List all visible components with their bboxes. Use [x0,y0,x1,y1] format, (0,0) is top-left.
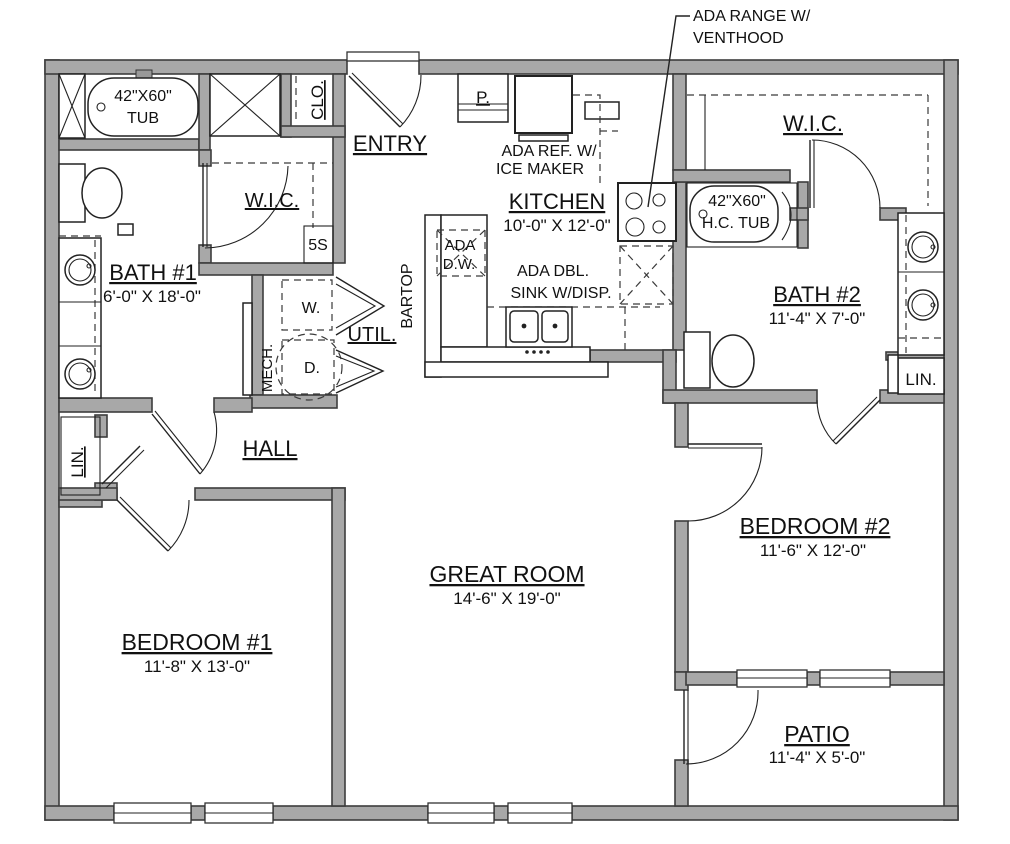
range-icon [618,183,676,241]
entry-door-icon [349,73,421,127]
room-label-wic-right: W.I.C. [783,111,843,136]
linen-left-door-icon [102,446,144,488]
room-label-lin-left: LIN. [68,446,87,477]
room-label-bath1: BATH #1 [109,260,197,285]
shower-icon [210,74,280,136]
room-label-bedroom2: BEDROOM #2 [740,513,891,539]
patio-door-icon [684,690,758,764]
room-dims-bedroom2: 11'-6" X 12'-0" [760,541,866,560]
bath1-door-icon [152,411,217,474]
room-label-pantry: P. [476,88,490,107]
dishwasher-label-line2: D.W. [443,256,476,273]
room-label-wic-left: W.I.C. [245,190,299,212]
room-label-washer: W. [302,300,321,317]
room-label-entry: ENTRY [353,131,427,156]
room-dims-bedroom1: 11'-8" X 13'-0" [144,657,250,676]
room-dims-bath2: 11'-4" X 7'-0" [769,309,866,328]
tub2-label-line2: H.C. TUB [702,215,770,232]
toilet-bath1-icon [59,164,133,235]
sink-label-line2: SINK W/DISP. [510,285,611,302]
floor-plan-svg: ENTRY KITCHEN 10'-0" X 12'-0" W.I.C. W.I… [0,0,1010,844]
linen-shelves-icon [59,74,85,138]
room-label-closet: CLO. [308,80,327,120]
room-label-bedroom1: BEDROOM #1 [122,629,273,655]
counter-drawer [585,102,619,119]
vanity-bath1-icon [59,236,101,398]
room-label-kitchen: KITCHEN [509,189,606,214]
room-label-lin-right: LIN. [905,370,936,389]
range-callout-line2: VENTHOOD [693,30,784,47]
pocket-door [243,303,252,395]
room-label-util: UTIL. [348,324,397,346]
room-label-5s: 5S [308,237,328,254]
wic-right-door-icon [810,140,880,208]
corner-cabinet-icon [620,246,673,304]
entry-threshold [347,52,419,61]
room-dims-great-room: 14'-6" X 19'-0" [453,589,560,608]
windows [114,670,890,823]
tub2-label-line1: 42"X60" [708,193,766,210]
fridge-label-line1: ADA REF. W/ [501,143,597,160]
room-dims-kitchen: 10'-0" X 12'-0" [503,216,610,235]
sink-label-line1: ADA DBL. [517,263,589,280]
toilet-bath2-icon [684,332,754,388]
fridge-label-line2: ICE MAKER [496,161,584,178]
room-label-patio: PATIO [784,721,850,747]
room-label-hall: HALL [242,436,297,461]
bedroom1-door-icon [117,497,189,551]
range-callout-line1: ADA RANGE W/ [693,8,811,25]
room-label-bartop: BARTOP [399,263,416,328]
dishwasher-label-line1: ADA [445,237,476,254]
room-label-dryer: D. [304,360,320,377]
tub1-label-line1: 42"X60" [114,88,172,105]
room-label-bath2: BATH #2 [773,282,861,307]
refrigerator-icon [515,76,572,141]
bedroom2-door-icon [688,444,762,521]
vanity-bath2-icon [898,213,944,355]
bath2-door-icon [817,397,880,444]
room-label-great-room: GREAT ROOM [429,561,584,587]
room-dims-bath1: 6'-0" X 18'-0" [103,287,201,306]
room-dims-patio: 11'-4" X 5'-0" [769,748,866,767]
floor-plan-page: ENTRY KITCHEN 10'-0" X 12'-0" W.I.C. W.I… [0,0,1010,844]
room-label-mech: MECH. [259,344,276,392]
tub1-label-line2: TUB [127,110,159,127]
kitchen-sink-icon [506,307,572,354]
